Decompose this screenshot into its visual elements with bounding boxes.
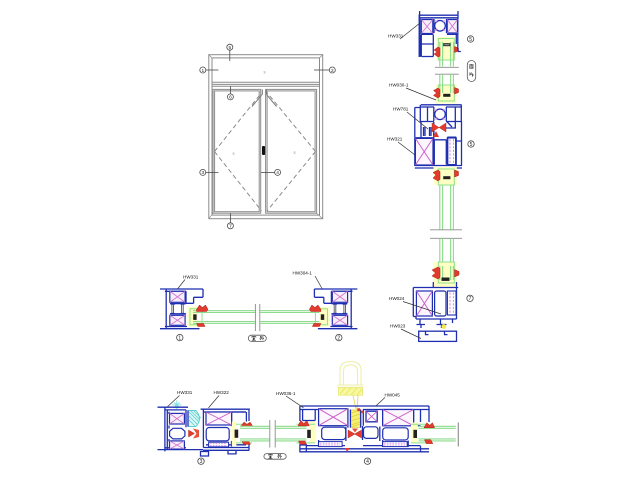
svg-text:4: 4: [366, 459, 369, 465]
svg-text:HW030-1: HW030-1: [389, 83, 409, 88]
svg-text:5: 5: [228, 45, 231, 51]
svg-text:7: 7: [469, 296, 472, 302]
svg-text:HW322: HW322: [214, 390, 230, 395]
svg-text:HW304-1: HW304-1: [293, 271, 313, 276]
svg-text:HW045: HW045: [385, 392, 401, 397]
svg-text:HW036-1: HW036-1: [276, 391, 296, 396]
svg-text:HW023: HW023: [390, 324, 406, 329]
svg-text:1: 1: [201, 68, 204, 74]
svg-text:5: 5: [470, 142, 473, 148]
svg-text:s: s: [263, 69, 265, 74]
svg-text:5: 5: [469, 37, 472, 43]
svg-text:s: s: [232, 151, 234, 156]
svg-text:3: 3: [201, 170, 204, 176]
svg-text:1: 1: [178, 335, 181, 341]
svg-text:HW331: HW331: [183, 274, 199, 279]
svg-text:HW024: HW024: [389, 296, 405, 301]
svg-text:2: 2: [331, 68, 334, 74]
svg-text:HW321: HW321: [387, 137, 403, 142]
svg-text:HW781: HW781: [393, 107, 409, 112]
svg-text:3: 3: [200, 459, 203, 465]
svg-text:6: 6: [229, 95, 232, 101]
svg-text:7: 7: [229, 224, 232, 230]
svg-text:4: 4: [276, 170, 279, 176]
svg-text:2: 2: [337, 335, 340, 341]
svg-text:HW331: HW331: [177, 390, 193, 395]
svg-text:s: s: [293, 150, 295, 155]
